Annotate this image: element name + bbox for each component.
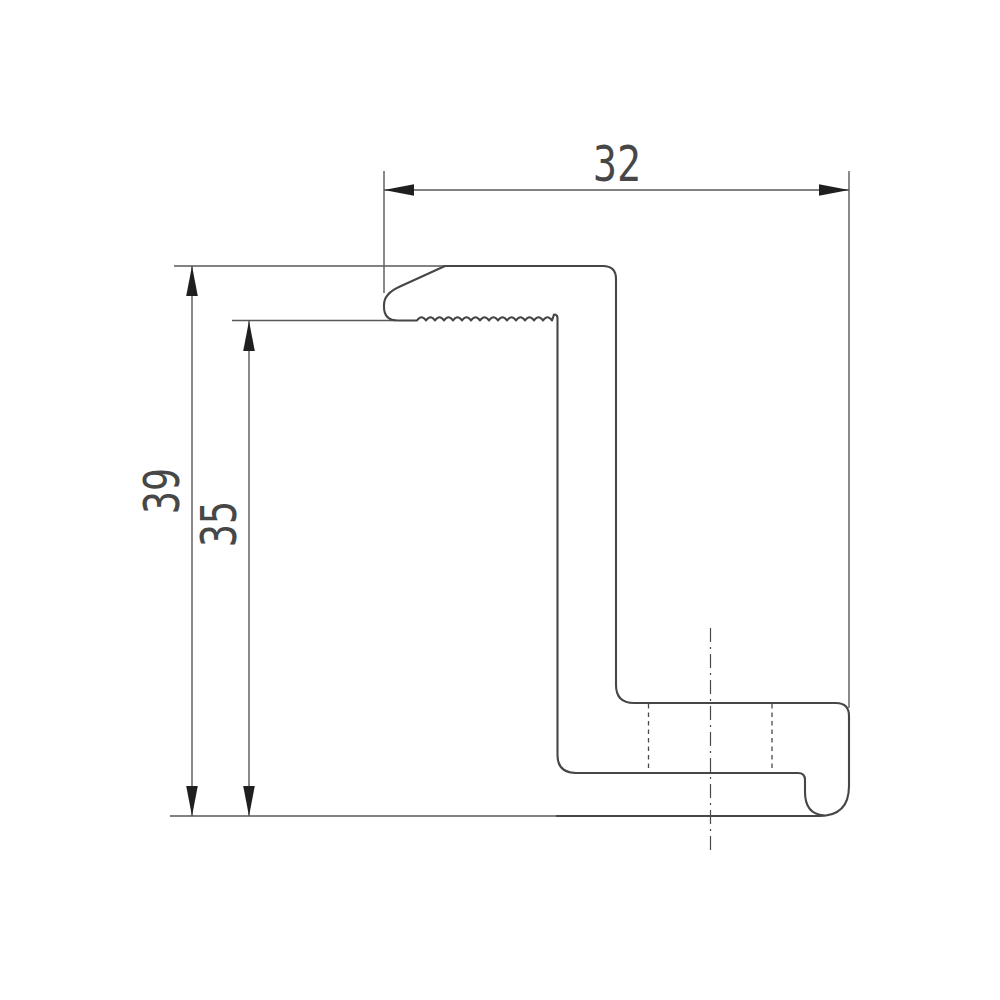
dimension-lines bbox=[192, 190, 849, 816]
inner-height-dimension-label: 35 bbox=[190, 501, 248, 547]
arrow-icon-overall-height-bottom bbox=[186, 786, 198, 816]
arrow-icon-inner-height-top bbox=[243, 321, 255, 351]
cad-drawing-canvas: 32 39 35 bbox=[0, 0, 1000, 1000]
arrow-icon-width-left bbox=[384, 184, 414, 196]
dimension-arrowheads bbox=[186, 184, 849, 816]
extension-lines bbox=[170, 171, 849, 816]
arrow-icon-width-right bbox=[819, 184, 849, 196]
arrow-icon-inner-height-bottom bbox=[243, 786, 255, 816]
arrow-icon-overall-height-top bbox=[186, 266, 198, 296]
width-dimension-label: 32 bbox=[593, 135, 641, 193]
profile-outer-contour bbox=[445, 266, 849, 816]
profile-left-contour-serrated-edge bbox=[384, 266, 824, 816]
overall-height-dimension-label: 39 bbox=[133, 468, 191, 514]
technical-drawing-page: 32 39 35 bbox=[0, 0, 1000, 1000]
clamp-profile bbox=[384, 266, 849, 816]
